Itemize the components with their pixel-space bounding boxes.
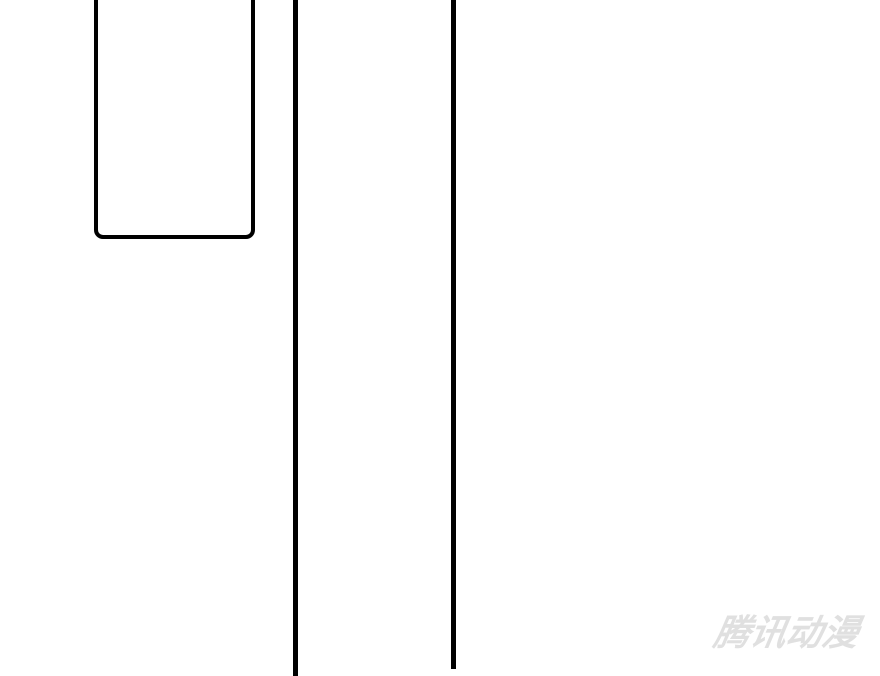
panel-outline-top-left xyxy=(94,0,255,239)
panel-border-line-left xyxy=(293,0,298,676)
panel-border-line-right xyxy=(451,0,456,669)
tencent-comics-watermark: 腾讯动漫 xyxy=(710,610,875,660)
comic-page: 腾讯动漫 xyxy=(0,0,880,676)
